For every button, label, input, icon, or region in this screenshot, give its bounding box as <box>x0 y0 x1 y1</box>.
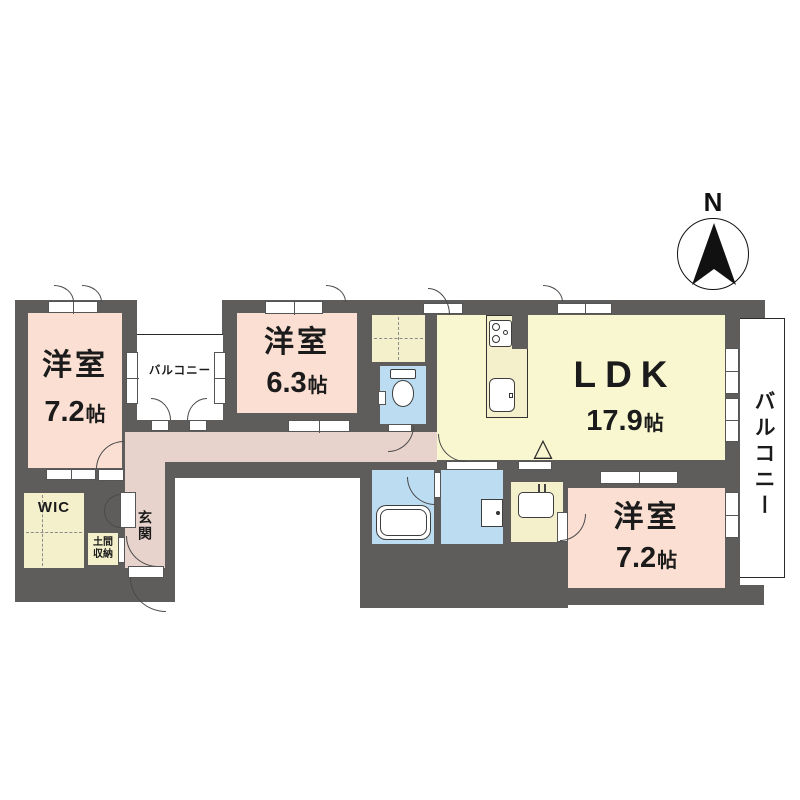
window <box>214 352 226 404</box>
casement-window-arc <box>82 285 102 302</box>
ldk-name: LDK <box>545 355 705 395</box>
vanity-faucet <box>538 484 540 493</box>
door-gap <box>434 472 441 498</box>
bedroom-top-name: 洋室 <box>237 322 357 356</box>
sliding-door <box>446 461 498 470</box>
door-gap <box>189 420 207 431</box>
sliding-door <box>600 471 678 484</box>
wic-dash <box>26 532 82 533</box>
doma-line2: 収納 <box>93 549 113 562</box>
doma-line1: 土間 <box>93 537 113 550</box>
door-gap <box>151 420 169 431</box>
size-unit: 帖 <box>657 544 677 573</box>
window <box>725 348 739 394</box>
window <box>557 303 612 314</box>
bedroom-bottom-right-name: 洋室 <box>568 497 725 531</box>
wall-segment <box>740 300 765 318</box>
window <box>725 398 739 442</box>
compass-icon <box>677 218 749 290</box>
toilet-tank-icon <box>390 369 416 379</box>
sink-drain <box>509 393 513 398</box>
size-value: 7.2 <box>616 542 656 575</box>
alarm-triangle-icon: △ <box>528 433 558 463</box>
sliding-door <box>46 469 96 480</box>
wic-door <box>120 492 136 528</box>
casement-window-arc <box>428 288 450 315</box>
vanity-icon <box>518 492 554 518</box>
floor-plan: バルコニー バルコニー 玄関 洋室 7.2帖 洋室 6.3帖 LDK 17.9帖… <box>0 0 800 800</box>
sliding-door <box>518 461 552 470</box>
compass-north-label: N <box>698 188 728 216</box>
washing-machine-dot <box>496 511 500 515</box>
door-gap <box>118 537 125 563</box>
inner-balcony-label: バルコニー <box>140 362 220 378</box>
size-value: 7.2 <box>44 396 84 429</box>
wic-label: WIC <box>26 496 82 518</box>
bathtub-inner <box>380 509 427 536</box>
bedroom-top-left-size: 7.2帖 <box>28 395 122 429</box>
stove-burner <box>492 323 500 331</box>
vanity-faucet <box>544 484 546 493</box>
size-value: 6.3 <box>266 367 306 400</box>
size-unit: 帖 <box>308 369 328 398</box>
bedroom-top-size: 6.3帖 <box>237 366 357 400</box>
right-balcony-label: バルコニー <box>742 375 784 535</box>
entrance-door-gap <box>128 566 164 578</box>
ldk-size: 17.9帖 <box>545 403 705 439</box>
wall-segment <box>740 585 764 605</box>
size-unit: 帖 <box>644 407 664 436</box>
window <box>126 352 138 404</box>
door-gap <box>98 469 124 481</box>
bedroom-bottom-right-size: 7.2帖 <box>568 541 725 575</box>
compass-needle-icon <box>678 219 750 291</box>
doma-storage-label: 土間 収納 <box>88 535 118 563</box>
window <box>265 301 323 314</box>
size-value: 17.9 <box>586 405 642 438</box>
toilet-paper-holder <box>378 391 386 405</box>
sliding-door <box>288 420 350 432</box>
bedroom-top-left-name: 洋室 <box>28 345 122 379</box>
casement-window-arc <box>54 285 74 302</box>
size-unit: 帖 <box>86 398 106 427</box>
window <box>48 301 98 313</box>
window <box>725 492 739 538</box>
toilet-bowl-icon <box>392 380 414 407</box>
stove-burner <box>492 335 500 343</box>
casement-window-arc <box>326 285 346 302</box>
casement-window-arc <box>543 285 563 302</box>
entrance-door-swing-arc <box>130 578 166 612</box>
stove-burner <box>503 330 508 335</box>
closet-dash <box>374 338 423 339</box>
kitchen-wall-stub <box>512 315 528 349</box>
